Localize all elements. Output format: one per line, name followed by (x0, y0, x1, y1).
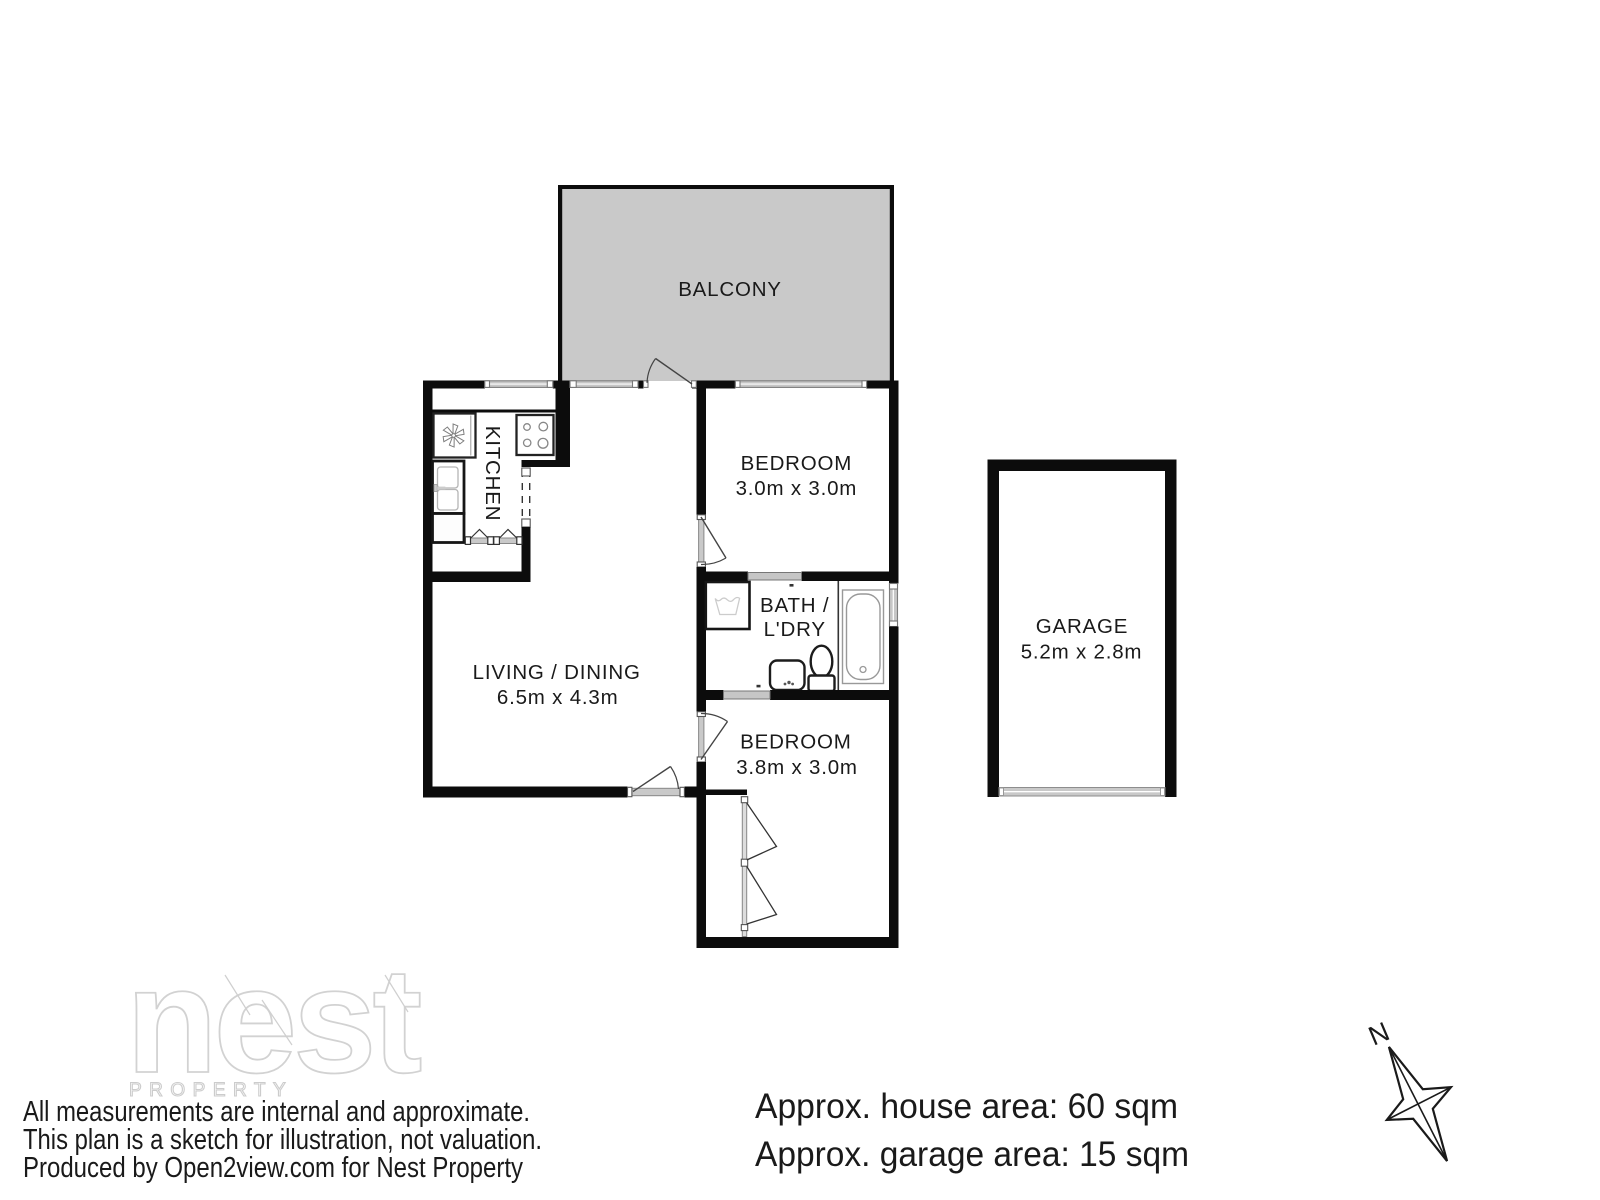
svg-text:BEDROOM: BEDROOM (741, 452, 853, 475)
svg-text:Approx. garage area: 15 sqm: Approx. garage area: 15 sqm (755, 1135, 1189, 1174)
svg-text:Produced by Open2view.com for: Produced by Open2view.com for Nest Prope… (23, 1151, 524, 1183)
svg-text:3.0m x 3.0m: 3.0m x 3.0m (736, 477, 858, 500)
svg-text:BATH /: BATH / (760, 594, 829, 617)
svg-text:BEDROOM: BEDROOM (740, 731, 852, 754)
svg-text:nest: nest (126, 936, 421, 1104)
svg-text:KITCHEN: KITCHEN (481, 426, 504, 522)
svg-text:5.2m x 2.8m: 5.2m x 2.8m (1021, 641, 1143, 664)
svg-text:LIVING / DINING: LIVING / DINING (473, 661, 641, 684)
svg-text:BALCONY: BALCONY (678, 278, 782, 301)
svg-text:L'DRY: L'DRY (764, 618, 826, 641)
svg-text:6.5m x 4.3m: 6.5m x 4.3m (497, 686, 619, 709)
svg-text:3.8m x 3.0m: 3.8m x 3.0m (736, 756, 858, 779)
svg-text:Approx. house area: 60 sqm: Approx. house area: 60 sqm (755, 1087, 1178, 1126)
svg-text:GARAGE: GARAGE (1036, 615, 1129, 638)
